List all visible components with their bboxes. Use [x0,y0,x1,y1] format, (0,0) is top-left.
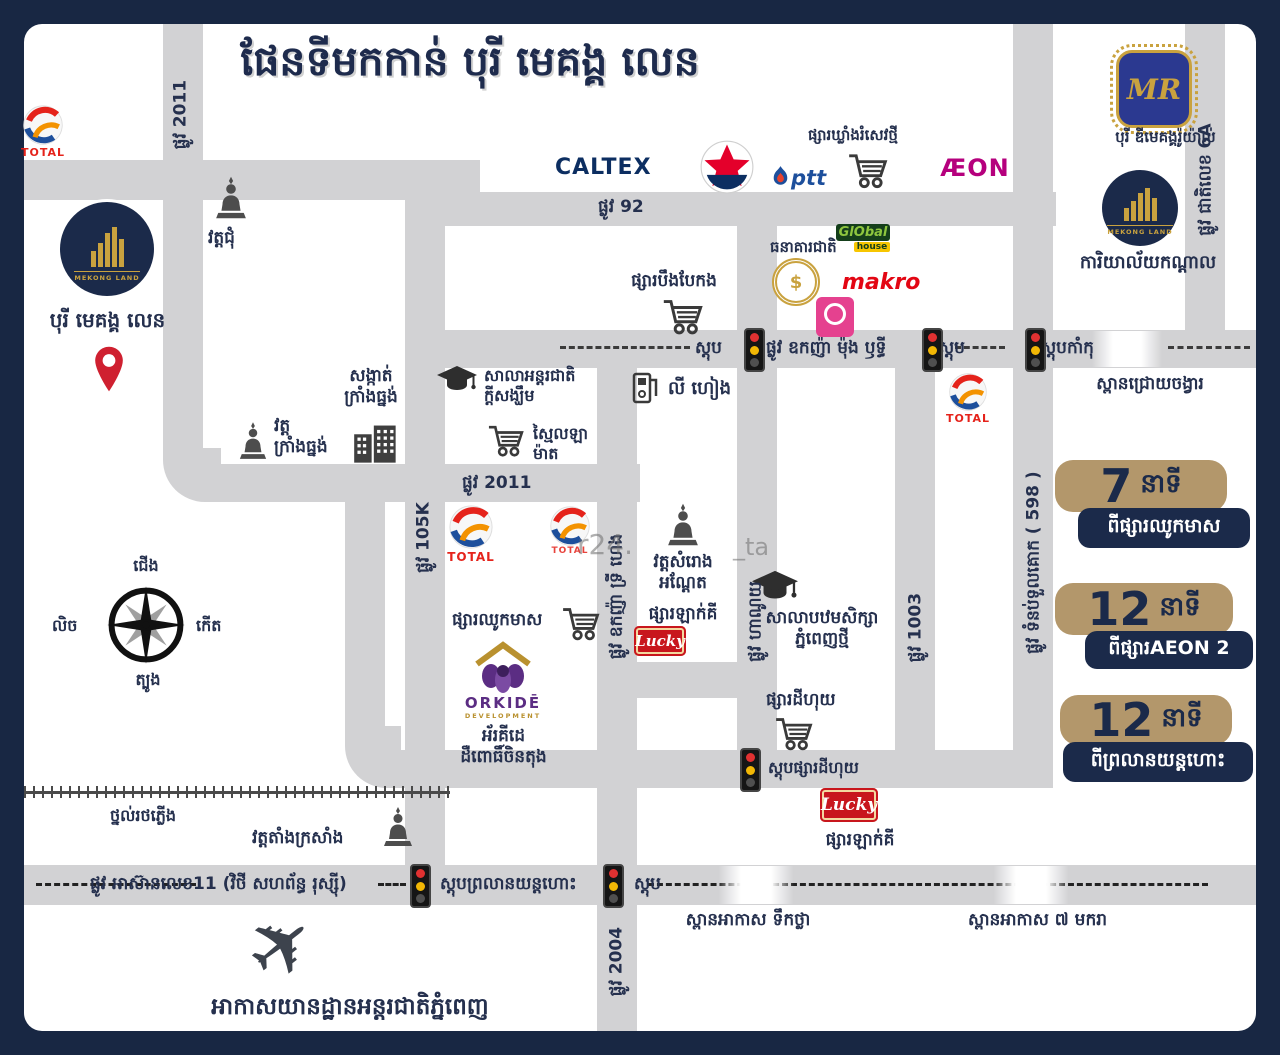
global-house-logo: GlObal house [836,224,890,252]
buddha-statue-icon [666,500,700,550]
total-wordmark: TOTAL [940,412,996,425]
ptt-wordmark: ptt [791,166,826,190]
wat-tang-krasang-label: វត្តតាំងក្រសាំង [252,828,343,849]
mart-label: ស្មៃលឡា ម៉ាត [533,424,588,464]
lucky-market-label: ផ្សារឡាក់គី [800,830,920,851]
traffic-light-icon [1025,328,1046,372]
shopping-cart-icon [775,716,815,752]
stop-label: ស្តុប [634,874,661,895]
global-house-wordmark: house [854,242,890,252]
khlang-romsev-market-label: ផ្សារឃ្លាំងរំសេវថ្មី [778,126,928,145]
traffic-light-icon [740,748,761,792]
chip-mong-logo [816,297,854,337]
mekong-land-logo: MEKONG LAND [60,202,154,296]
badge-12-minutes-airport-from: ពីព្រលានយន្តហោះ [1063,742,1253,782]
badge-minutes: 12 [1087,586,1151,632]
map-canvas: ផែនទីមកកាន់ បុរី មេគង្គ លេន r24. _ta ផ្ល… [0,0,1280,1055]
traffic-light-icon [603,864,624,908]
total-wordmark: TOTAL [440,550,502,564]
hope-school-label: សាលាអន្តរជាតិ ក្តីសង្ឃឹម [484,366,575,406]
airport-name-label: អាកាសយានដ្ឋានអន្តរជាតិភ្នំពេញ [120,993,580,1022]
orkide-development-wordmark: DEVELOPMENT [448,712,558,720]
total-logo-icon [448,504,494,550]
compass-east-label: កើត [196,616,221,636]
dey-huy-market-label: ផ្សារដីហុយ [766,690,836,711]
street-label-asean-11: ផ្លូវ អាស៊ានលេខ11 (វិថី សហព័ន្ធ រុស្ស៊ី) [90,874,347,895]
badge-minutes: 7 [1100,463,1132,509]
ptt-flame-icon [772,164,789,192]
mr-crest-logo: MR [1116,50,1192,128]
boeng-baek-kang-label: ផ្សារបឹងបែកង [604,271,744,292]
caltex-star-icon [700,140,754,194]
compass-rose-icon [103,582,189,668]
total-wordmark: TOTAL [14,146,72,159]
street-label-105k: ផ្លូវ 105K [413,483,434,593]
aeon-wordmark: ÆON [940,154,1010,182]
flyover-label-7-makara: ស្ពានអាកាស ៧ មករា [950,910,1125,931]
lucky-logo: Lucky [634,626,686,656]
center-dash [1168,346,1250,349]
railway-label: ថ្នល់រថភ្លើង [110,806,176,826]
wat-chum-label: វត្តជុំ [208,228,235,249]
flyover-chroy-changvar [1092,331,1162,367]
badge-7-minutes-from: ពីផ្សារឈូកមាស [1078,508,1250,548]
street-label-2011-vertical: ផ្លូវ 2011 [170,60,191,170]
lucky-logo: Lucky [820,788,878,822]
traffic-light-icon [744,328,765,372]
mekong-land-buildings-icon [91,227,124,267]
center-dash [560,346,690,349]
watermark-fragment: _ta [733,533,769,561]
total-logo-icon [948,372,988,412]
orkide-khmer-label: អ័រគីដេ ដឺពោធិ៍ចិនតុង [436,726,571,769]
street-label-oknha-mong-rithy: ផ្លូវ ឧកញ៉ា ម៉ុង ឫទ្ធី [766,338,886,359]
center-dash [378,883,406,886]
shopping-cart-icon [662,298,706,336]
buddha-statue-icon [214,172,248,224]
page-title: ផែនទីមកកាន់ បុរី មេគង្គ លេន [205,36,735,96]
total-logo-icon [22,104,64,146]
borey-mekong-len-label: បុរី មេគង្គ លេន [40,308,175,333]
street-label-92: ផ្លូវ 92 [598,197,644,218]
watermark-fragment: r24. [577,528,633,561]
mr-monogram: MR [1127,73,1181,106]
stop-label-airport: ស្តុបព្រលានយន្តហោះ [440,874,577,895]
street-label-598: ផ្លូវ ទំនប់ទួលគោក ( 598 ) [1023,448,1044,678]
wat-samrong-andet-label: វត្តសំរោង អណ្ដែត [628,552,738,595]
orkide-logo: ORKIDĒ DEVELOPMENT [448,640,558,720]
building-icon [352,422,400,464]
orkide-orchid-icon [471,640,535,694]
street-label-1003: ផ្លូវ 1003 [905,573,926,683]
mekong-land-buildings-icon [1124,188,1157,221]
buddha-statue-icon [382,804,414,850]
flyover-label-tuek-thla: ស្ពានអាកាស ទឹកថ្លា [668,910,828,931]
global-wordmark: GlObal [836,224,890,241]
shopping-cart-icon [562,606,602,642]
badge-minutes: 12 [1089,697,1153,743]
traffic-light-icon [410,864,431,908]
shopping-cart-icon [487,424,527,458]
badge-unit: នាទី [1159,590,1200,628]
road-stub [637,662,737,698]
bank-seal-icon: $ [772,258,820,306]
badge-unit: នាទី [1161,701,1202,739]
street-label-national-6a: ផ្លូវ ជាតិលេខ 6A [1195,95,1216,265]
flyover-tuek-thla [718,866,794,904]
compass-west-label: លិច [52,616,77,636]
mekong-land-wordmark: MEKONG LAND [1107,225,1172,236]
badge-unit: នាទី [1140,467,1181,505]
central-office-label: ការិយាល័យកណ្តាល [1058,252,1238,275]
street-label-2004: ផ្លូវ 2004 [606,907,627,1017]
chip-mong-icon [824,303,846,325]
lucky-market-label: ផ្សារឡាក់គី [628,604,738,625]
badge-12-minutes-aeon-from: ពីផ្សារAEON 2 [1085,631,1253,669]
mekong-land-wordmark: MEKONG LAND [74,271,139,282]
badge-12-minutes-aeon: 12 នាទី [1055,583,1233,635]
buddha-statue-icon [238,418,268,464]
stop-label-dey-huy: ស្តុបផ្សារដីហុយ [768,758,859,778]
badge-7-minutes: 7 នាទី [1055,460,1227,512]
stop-label: ស្តុប [695,338,722,359]
orkide-wordmark: ORKIDĒ [448,694,558,712]
caltex-wordmark: CALTEX [555,155,652,180]
flyover-7-makara [993,866,1069,904]
sangkat-krang-thnong-label: សង្កាត់ ក្រាំងធ្នង់ [328,366,414,409]
chhouk-meas-market-label: ផ្សារឈូកមាស [452,610,542,631]
mekong-land-logo: MEKONG LAND [1102,170,1178,246]
badge-12-minutes-airport: 12 នាទី [1060,695,1232,745]
wat-krang-thnong-label: វត្ត ក្រាំងធ្នង់ [274,416,328,459]
ly-heang-label: លី ហៀង [668,378,731,401]
pp-thmey-school-label: សាលាបឋមសិក្សា ភ្នំពេញថ្មី [742,608,902,651]
location-pin-icon [92,340,126,398]
bridge-label-chroy-changvar: ស្ពានជ្រោយចង្វារ [1060,374,1240,395]
compass-south-label: ត្បូង [118,670,178,690]
dmekong-royal-label: បុរី ឌីមេគង្គរ៉ូយ៉ាល់ [1078,128,1253,147]
fuel-pump-icon [632,370,660,406]
makro-wordmark: makro [842,270,920,295]
traffic-light-icon [922,328,943,372]
railway-rail [24,791,450,794]
compass-north-label: ជើង [116,556,176,576]
shopping-cart-icon [848,152,890,190]
road-street-92 [405,192,1056,226]
street-label-2011: ផ្លូវ 2011 [462,473,531,494]
stop-label-kamku: ស្តុបកាំកុ [1040,338,1094,359]
road-vertical-west [345,485,385,726]
national-bank-label: ធនាគារជាតិ [770,238,837,257]
graduation-cap-icon [437,366,477,394]
